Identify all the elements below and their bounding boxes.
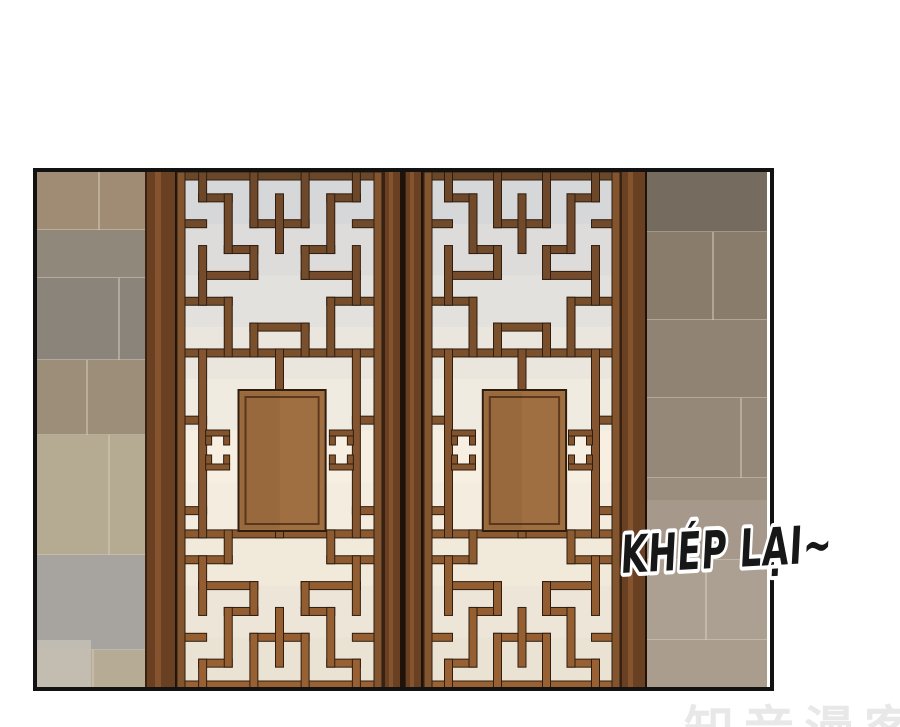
watermark-text: 知音漫客 bbox=[684, 701, 900, 727]
stone-wall-right bbox=[647, 172, 767, 688]
lattice-door-left bbox=[177, 172, 382, 690]
door-frame-post-right bbox=[620, 172, 647, 688]
speech-sfx-text: KHÉP LẠI~ bbox=[619, 512, 834, 586]
stone-wall-left bbox=[37, 172, 145, 688]
comic-page: 知音漫客 KHÉP LẠI~ bbox=[0, 0, 900, 727]
comic-panel-artwork: 知音漫客 KHÉP LẠI~ bbox=[0, 0, 900, 727]
lattice-door-right bbox=[424, 172, 620, 690]
door-frame-post-left bbox=[145, 172, 177, 688]
door-frame-post-center bbox=[382, 172, 424, 688]
